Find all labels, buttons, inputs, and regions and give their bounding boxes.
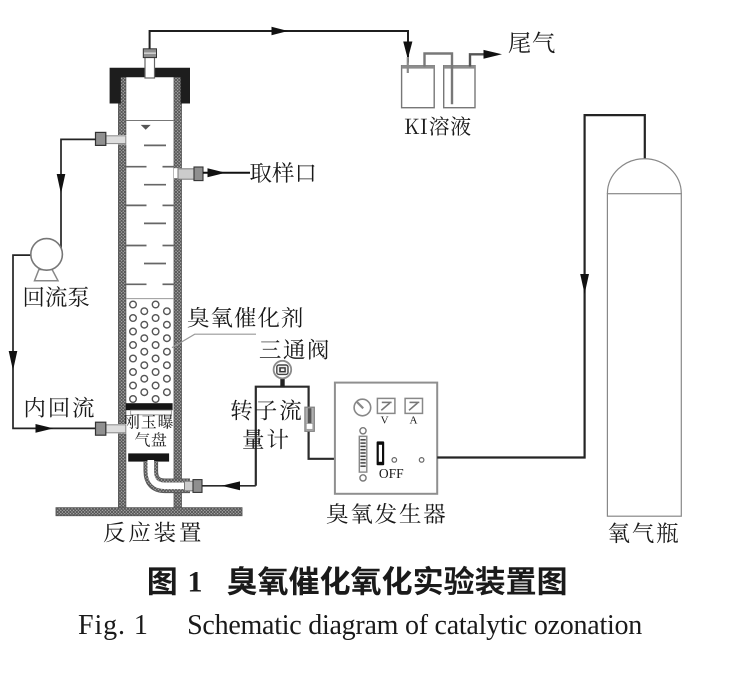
svg-text:OFF: OFF — [379, 466, 404, 481]
svg-text:Fig. 1: Fig. 1 — [78, 610, 149, 641]
svg-text:A: A — [410, 415, 418, 427]
svg-text:Schematic diagram of catalytic: Schematic diagram of catalytic ozonation — [187, 610, 642, 641]
svg-text:1: 1 — [188, 566, 203, 599]
svg-text:V: V — [381, 414, 389, 426]
